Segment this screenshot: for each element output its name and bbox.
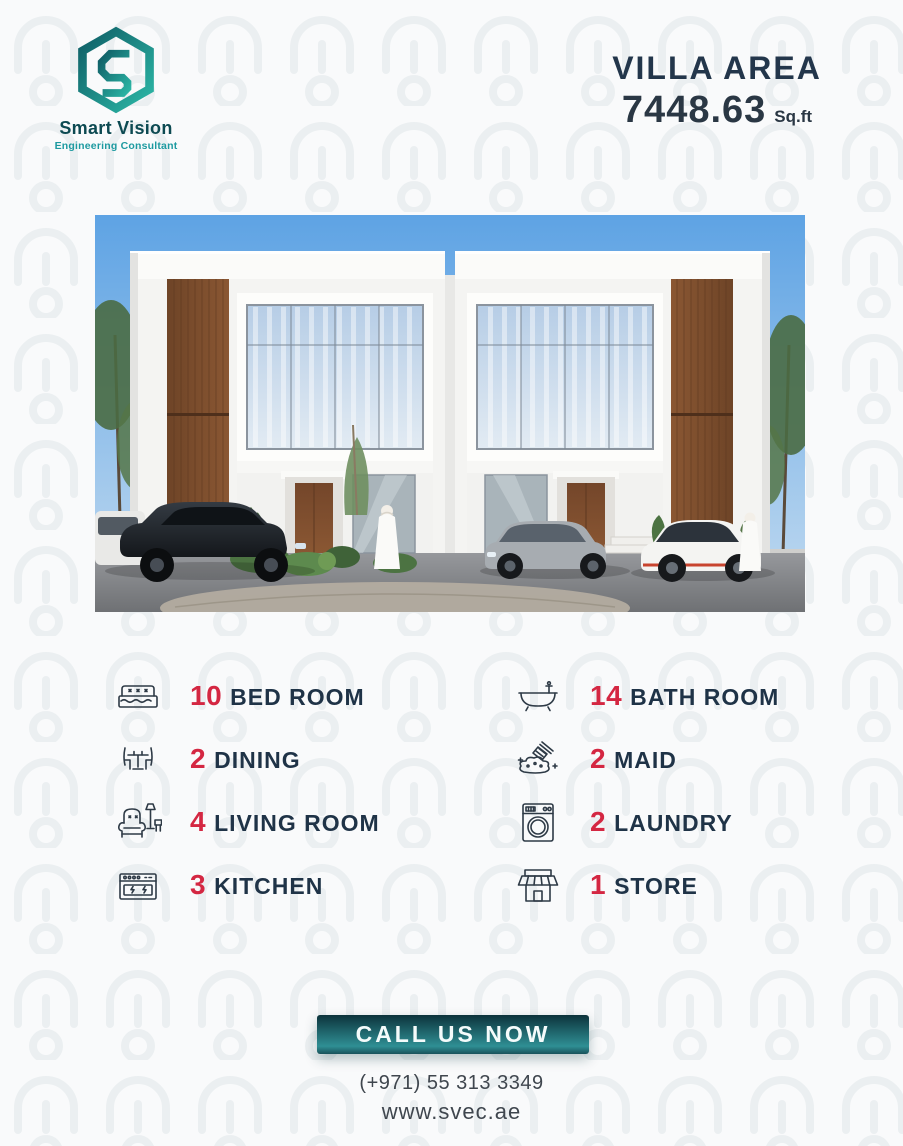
feature-label: BED ROOM [230, 684, 365, 710]
feature-bedroom: 10BED ROOM [112, 670, 512, 722]
feature-store: 1STORE [512, 859, 812, 911]
feature-label: LAUNDRY [614, 810, 733, 836]
maid-icon [512, 733, 564, 785]
website-url: www.svec.ae [0, 1099, 903, 1125]
brand-block: Smart Vision Engineering Consultant [36, 24, 196, 152]
feature-label: DINING [214, 747, 301, 773]
villa-area-block: VILLA AREA 7448.63 Sq.ft [587, 50, 847, 132]
feature-count: 2 [190, 743, 206, 774]
feature-label: STORE [614, 873, 698, 899]
feature-living-room: 4LIVING ROOM [112, 796, 512, 848]
feature-count: 1 [590, 869, 606, 900]
feature-count: 4 [190, 806, 206, 837]
bathtub-icon [512, 670, 564, 722]
feature-kitchen: 3KITCHEN [112, 859, 512, 911]
smart-vision-logo-icon [70, 24, 162, 116]
feature-label: MAID [614, 747, 677, 773]
villa-rendering [95, 215, 805, 612]
feature-count: 10 [190, 680, 222, 711]
laundry-icon [512, 796, 564, 848]
villa-area-title: VILLA AREA [587, 50, 847, 87]
phone-number: (+971) 55 313 3349 [0, 1072, 903, 1095]
feature-label: KITCHEN [214, 873, 323, 899]
call-us-now-button[interactable]: CALL US NOW [317, 1015, 589, 1054]
feature-count: 2 [590, 743, 606, 774]
feature-count: 2 [590, 806, 606, 837]
dining-icon [112, 733, 164, 785]
store-icon [512, 859, 564, 911]
feature-label: BATH ROOM [630, 684, 779, 710]
feature-count: 3 [190, 869, 206, 900]
feature-count: 14 [590, 680, 622, 711]
living-room-icon [112, 796, 164, 848]
flyer-page: Smart Vision Engineering Consultant VILL… [0, 0, 903, 1146]
brand-tagline: Engineering Consultant [36, 140, 196, 152]
feature-dining: 2DINING [112, 733, 512, 785]
feature-laundry: 2LAUNDRY [512, 796, 812, 848]
villa-area-unit: Sq.ft [774, 107, 812, 127]
bed-icon [112, 670, 164, 722]
kitchen-icon [112, 859, 164, 911]
brand-name: Smart Vision [36, 118, 196, 139]
feature-maid: 2MAID [512, 733, 812, 785]
villa-area-value: 7448.63 [622, 89, 766, 132]
feature-label: LIVING ROOM [214, 810, 380, 836]
feature-bathroom: 14BATH ROOM [512, 670, 812, 722]
features-list: 10BED ROOM 2DINING [112, 664, 812, 916]
